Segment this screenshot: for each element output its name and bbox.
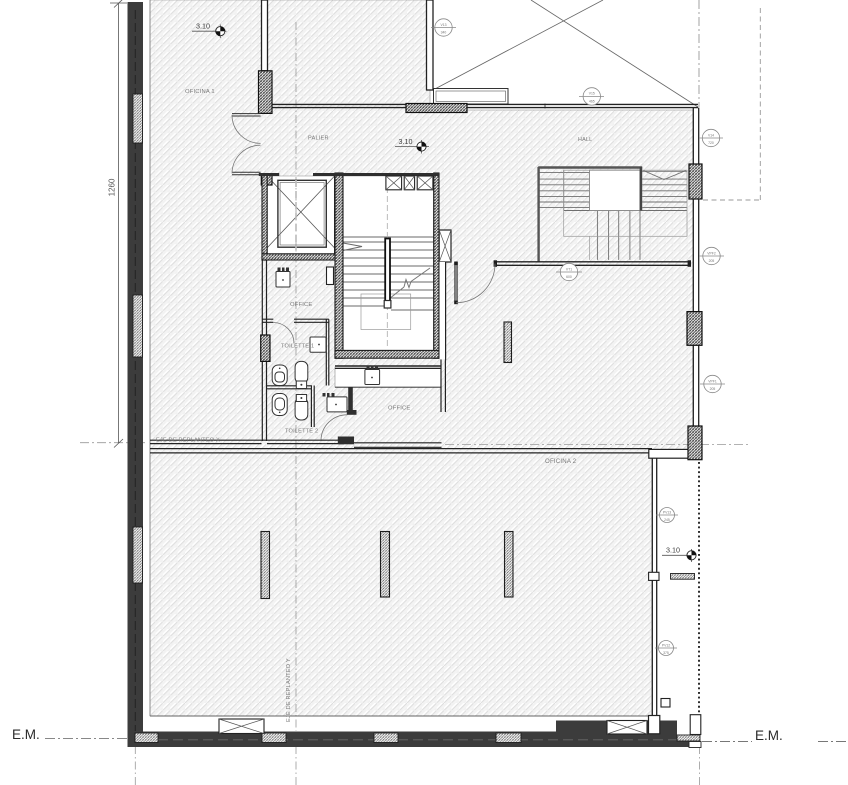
svg-text:TOILETTE 1: TOILETTE 1 [281,344,314,350]
svg-text:205: 205 [709,259,715,263]
svg-text:E.M.: E.M. [755,728,783,743]
svg-text:720: 720 [708,141,714,145]
svg-text:1260: 1260 [108,178,117,196]
svg-text:PALIER: PALIER [308,136,329,142]
svg-text:EJE DE REPLANTEO X: EJE DE REPLANTEO X [156,438,220,444]
svg-text:VPF1: VPF1 [708,379,717,383]
svg-text:PV13: PV13 [663,510,671,514]
svg-text:HALL: HALL [578,137,592,143]
svg-text:3.10: 3.10 [399,137,413,146]
svg-text:OFFICE: OFFICE [388,406,410,412]
svg-text:E.M.: E.M. [12,727,40,742]
svg-text:VPF2: VPF2 [707,251,716,255]
svg-text:465: 465 [589,100,595,104]
svg-text:375: 375 [663,651,669,655]
svg-text:V14: V14 [708,133,714,137]
svg-text:340: 340 [441,31,447,35]
svg-text:V15: V15 [589,92,595,96]
svg-text:3.10: 3.10 [196,22,210,31]
svg-text:OFFICE: OFFICE [290,302,312,308]
svg-text:TOILETTE 2: TOILETTE 2 [285,429,318,435]
svg-text:V13: V13 [440,23,446,27]
svg-text:205: 205 [710,387,716,391]
svg-text:600: 600 [566,275,572,279]
svg-text:3.10: 3.10 [666,546,680,555]
svg-text:OFICINA 2: OFICINA 2 [545,458,577,465]
svg-text:OFICINA 1: OFICINA 1 [185,89,215,95]
svg-text:245: 245 [664,518,670,522]
svg-text:PV12: PV12 [662,643,670,647]
svg-text:EJE DE REPLANTEO Y: EJE DE REPLANTEO Y [286,658,292,722]
svg-text:VT1: VT1 [566,267,572,271]
